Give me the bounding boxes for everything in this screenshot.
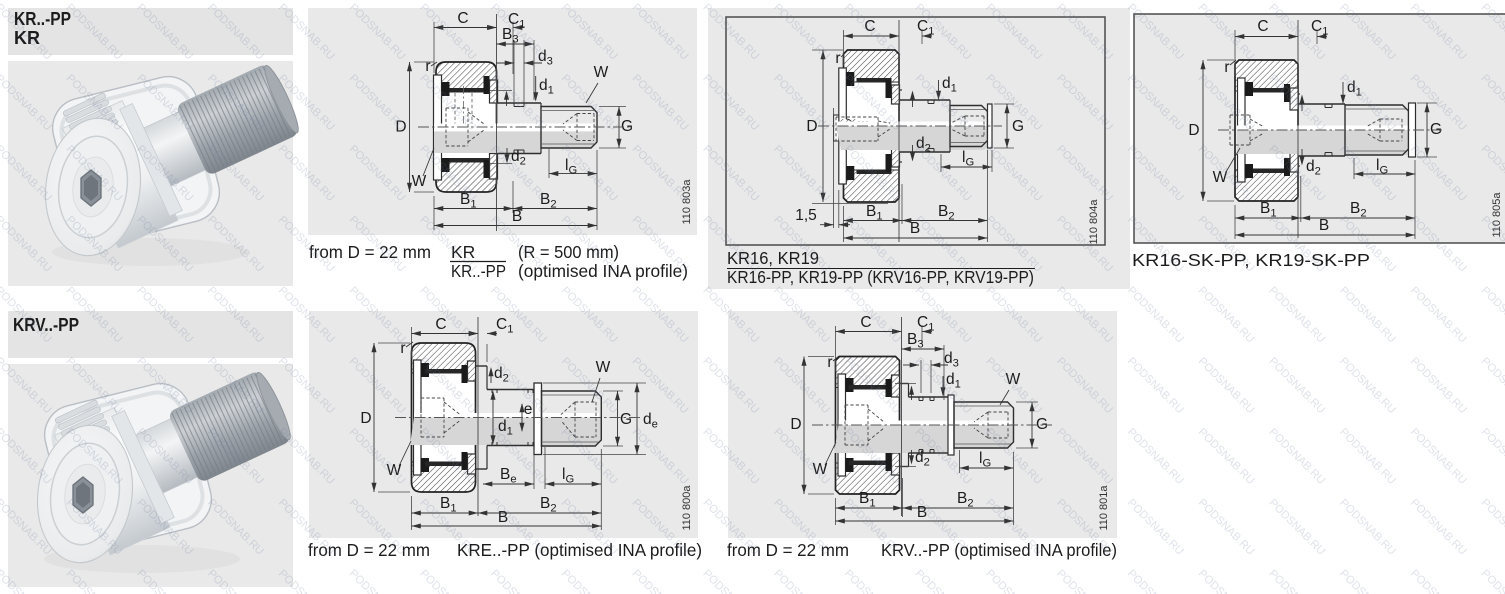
svg-text:r: r — [835, 50, 840, 67]
svg-text:B: B — [1319, 217, 1329, 234]
svg-text:G: G — [1430, 121, 1442, 138]
svg-text:110 800a: 110 800a — [681, 485, 693, 531]
svg-text:r: r — [1224, 59, 1229, 76]
svg-text:KRV..-PP (optimised INA profil: KRV..-PP (optimised INA profile) — [881, 540, 1117, 560]
svg-text:110 801a: 110 801a — [1098, 485, 1110, 531]
svg-text:G: G — [621, 118, 633, 135]
svg-text:B: B — [512, 208, 522, 225]
svg-text:C: C — [457, 10, 468, 27]
svg-text:1,5: 1,5 — [795, 207, 817, 224]
svg-text:W: W — [594, 64, 609, 81]
svg-text:110 804a: 110 804a — [1088, 199, 1100, 245]
svg-text:G: G — [1036, 416, 1048, 433]
svg-text:KR16-PP, KR19-PP (KRV16-PP, KR: KR16-PP, KR19-PP (KRV16-PP, KRV19-PP) — [727, 267, 1034, 287]
svg-text:W: W — [596, 359, 611, 376]
svg-text:W: W — [412, 173, 427, 190]
svg-text:G: G — [1012, 118, 1024, 135]
svg-text:KRE..-PP (optimised INA profil: KRE..-PP (optimised INA profile) — [457, 540, 702, 560]
svg-text:D: D — [1188, 122, 1199, 139]
svg-text:D: D — [360, 410, 371, 427]
svg-text:G: G — [620, 411, 632, 428]
svg-text:C: C — [1257, 18, 1268, 35]
svg-text:D: D — [790, 416, 801, 433]
